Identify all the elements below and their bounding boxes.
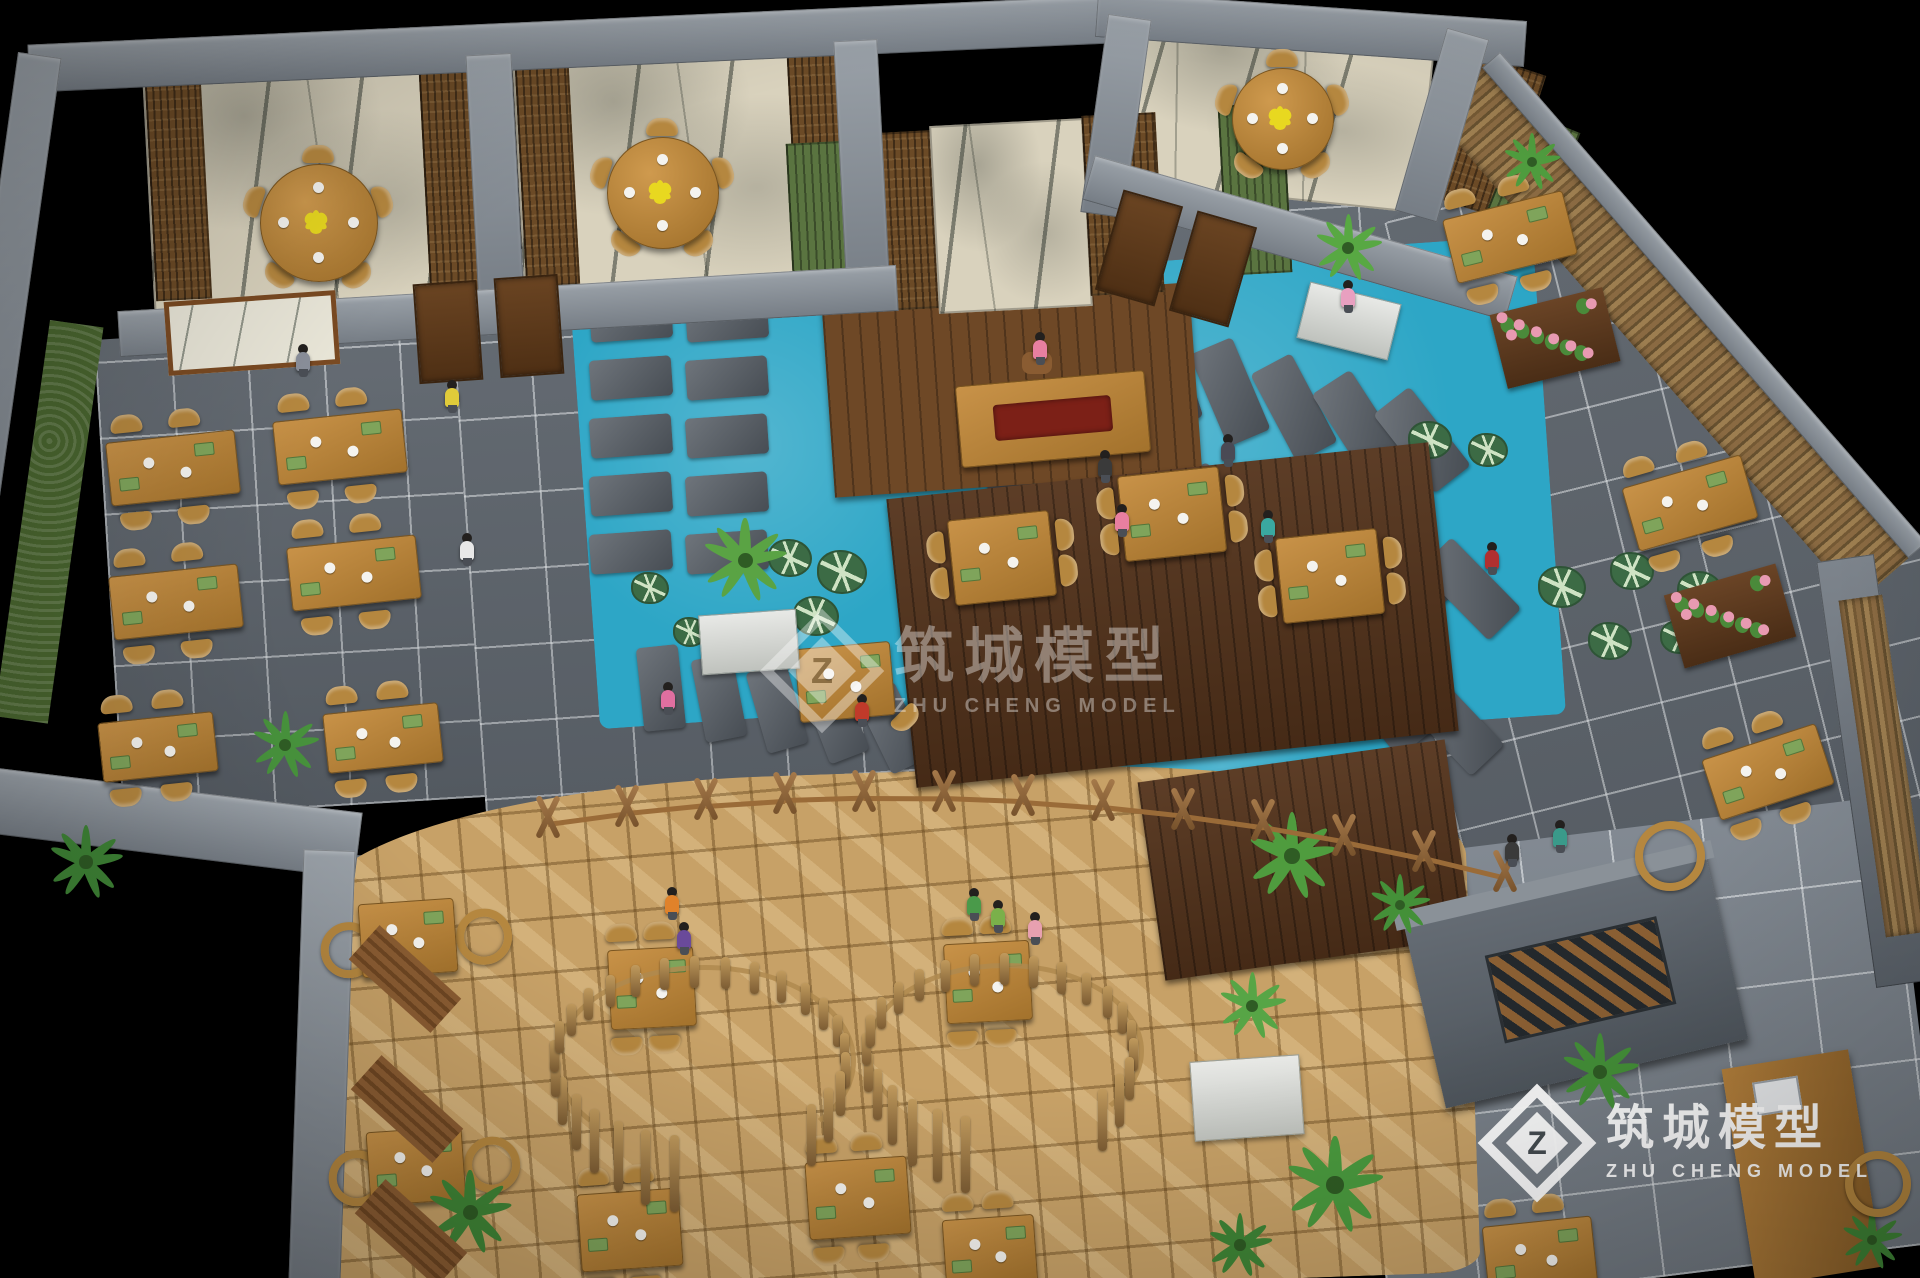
figure-person xyxy=(676,922,692,956)
person-legs xyxy=(668,912,677,920)
person-legs xyxy=(1031,937,1040,945)
figure-person xyxy=(660,682,676,716)
figure-person xyxy=(1340,280,1356,314)
person-legs xyxy=(299,369,308,377)
person-legs xyxy=(1101,475,1110,483)
person-legs xyxy=(970,913,979,921)
figure-person xyxy=(1027,912,1043,946)
person-legs xyxy=(1036,357,1045,365)
person-legs xyxy=(664,707,673,715)
figure-person xyxy=(1484,542,1500,576)
person-legs xyxy=(1488,567,1497,575)
person-legs xyxy=(1118,529,1127,537)
figure-person xyxy=(990,900,1006,934)
figure-person xyxy=(459,533,475,567)
figure-person xyxy=(1220,434,1236,468)
figure-person xyxy=(1114,504,1130,538)
person-legs xyxy=(1556,845,1565,853)
restaurant-model-photo: Z 筑城模型 ZHU CHENG MODEL Z 筑城模型 ZHU CHENG … xyxy=(0,0,1920,1278)
person-legs xyxy=(680,947,689,955)
figure-person xyxy=(1097,450,1113,484)
figure-person xyxy=(295,344,311,378)
person-legs xyxy=(1344,305,1353,313)
figure-person xyxy=(1032,332,1048,366)
figure-person xyxy=(1504,834,1520,868)
people-layer xyxy=(0,0,1920,1278)
figure-person xyxy=(1552,820,1568,854)
figure-person xyxy=(966,888,982,922)
person-legs xyxy=(858,719,867,727)
figure-person xyxy=(854,694,870,728)
person-legs xyxy=(463,558,472,566)
person-legs xyxy=(994,925,1003,933)
person-legs xyxy=(1508,859,1517,867)
person-legs xyxy=(448,405,457,413)
figure-person xyxy=(444,380,460,414)
figure-person xyxy=(1260,510,1276,544)
person-legs xyxy=(1264,535,1273,543)
figure-person xyxy=(664,887,680,921)
person-legs xyxy=(1224,459,1233,467)
